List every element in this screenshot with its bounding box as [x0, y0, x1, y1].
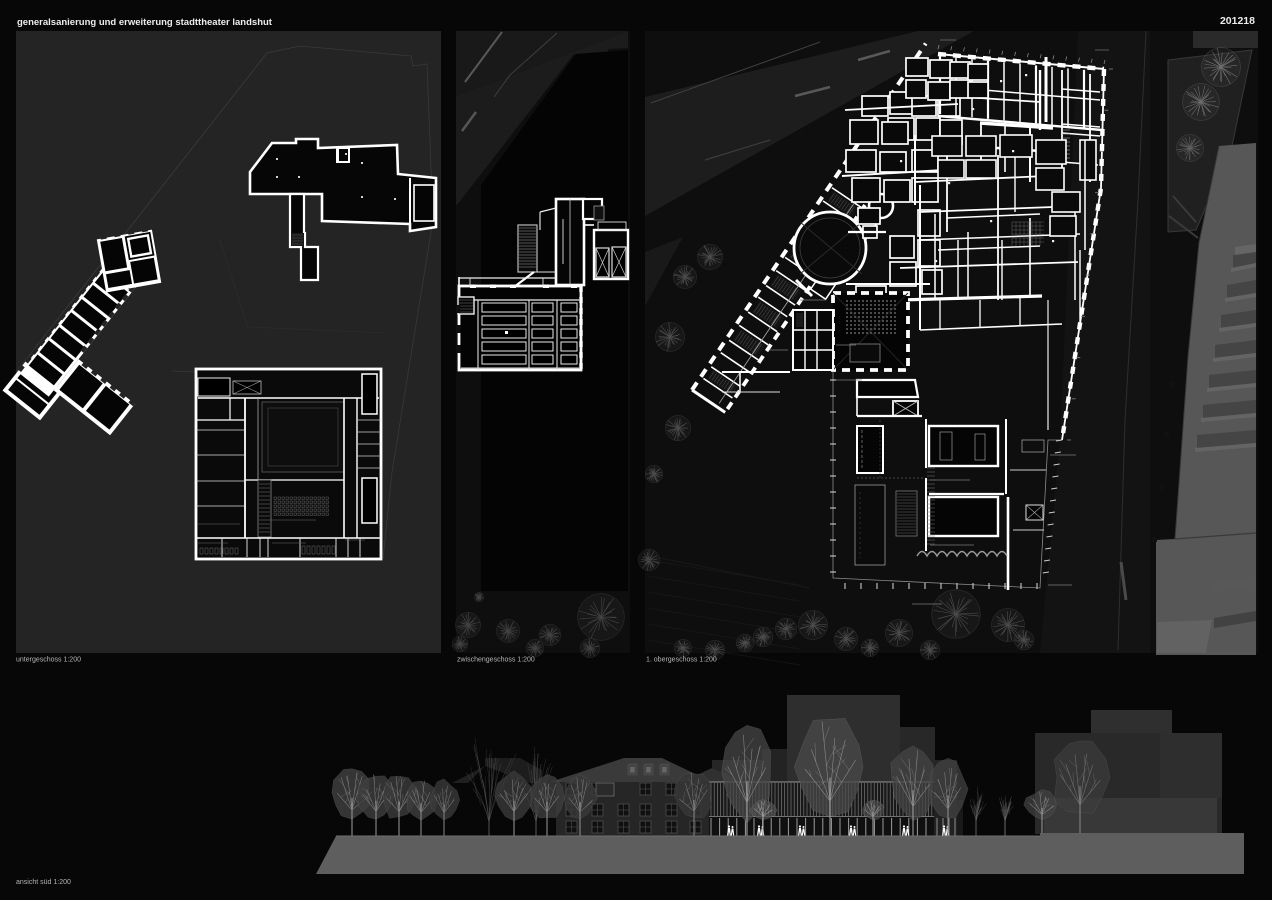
svg-text:generalsanierung und erweiteru: generalsanierung und erweiterung stadtth… [17, 17, 273, 28]
svg-text:1. obergeschoss 1:200: 1. obergeschoss 1:200 [646, 657, 717, 664]
svg-text:ansicht süd 1:200: ansicht süd 1:200 [16, 879, 71, 886]
svg-text:zwischengeschoss 1:200: zwischengeschoss 1:200 [457, 657, 535, 664]
svg-text:untergeschoss 1:200: untergeschoss 1:200 [16, 657, 81, 664]
svg-text:201218: 201218 [1220, 15, 1255, 27]
